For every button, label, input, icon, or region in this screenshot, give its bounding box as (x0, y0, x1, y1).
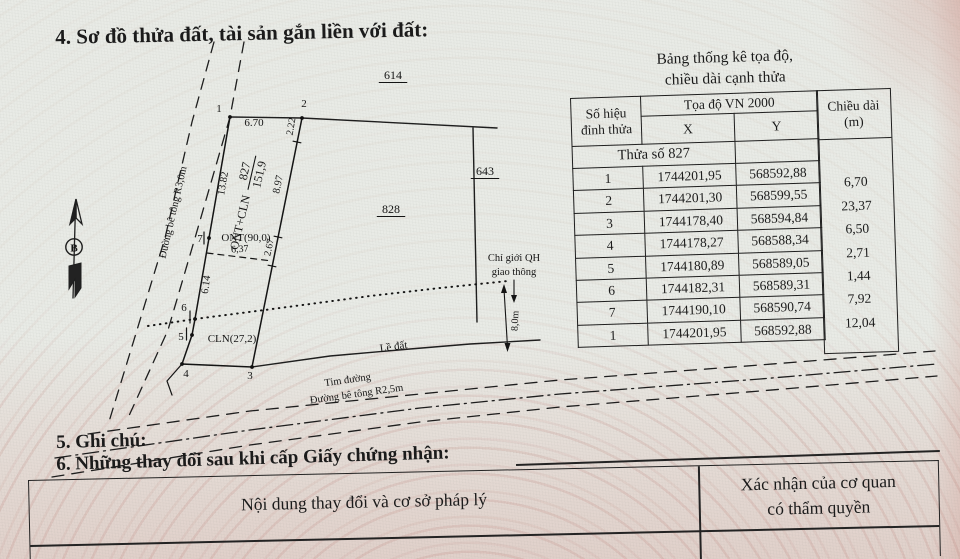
diagram-label: 6,37 (231, 243, 249, 255)
coord-cell: 5 (576, 256, 647, 281)
coord-cell: 1744201,95 (648, 320, 742, 345)
coord-cell: 1744201,95 (643, 163, 737, 188)
diagram-label: 5 (178, 331, 184, 343)
coordinate-table: Số hiệuđỉnh thửa Tọa độ VN 2000 X Y Thửa… (570, 88, 898, 362)
diagram-label: Lề đất (379, 339, 408, 355)
length-value: 1,44 (822, 267, 895, 285)
coord-cell: 568599,55 (736, 183, 821, 208)
length-column: Chiều dài (m) 6,7023,376,502,711,447,921… (815, 88, 898, 354)
changes-right-header: Xác nhận của cơ quan có thẩm quyền (698, 468, 939, 522)
diagram-label: Chỉ giới QH (488, 253, 541, 264)
diagram-label: CLN(27,2) (208, 333, 257, 345)
diagram-label: Đường bê tông R3,0m (158, 165, 190, 259)
header-x: X (641, 113, 735, 144)
length-value: 6,50 (821, 220, 894, 238)
coord-cell: 3 (574, 211, 645, 236)
coord-cell: 1 (573, 166, 644, 191)
coord-cell: 1744190,10 (647, 298, 741, 323)
diagram-label: 614 (384, 68, 402, 82)
diagram-label: 4 (183, 368, 189, 380)
diagram-label: 6 (181, 302, 187, 314)
diagram-label: 643 (476, 164, 494, 178)
coord-cell: 568592,88 (741, 317, 826, 342)
header-length: Chiều dài (m) (816, 89, 891, 140)
diagram-label: giao thông (492, 267, 537, 278)
length-value: 12,04 (823, 314, 896, 332)
diagram-label: Đường bê tông R2,5m (309, 383, 404, 407)
coord-cell: 568590,74 (740, 295, 825, 320)
header-y: Y (734, 111, 819, 142)
coord-cell: 1744201,30 (643, 186, 737, 211)
diagram-label: 2 (301, 98, 307, 110)
coord-cell: 1744178,40 (644, 208, 738, 233)
diagram-label: Tim đường (324, 372, 373, 390)
diagram-label: 8.97 (271, 174, 286, 194)
coord-cell: 6 (576, 278, 647, 303)
header-vertex: Số hiệuđỉnh thửa (571, 96, 642, 146)
coord-cell: 1 (578, 323, 649, 348)
north-label: B (70, 243, 78, 255)
length-value: 6,70 (819, 173, 892, 191)
diagram-label: 3 (247, 370, 253, 382)
diagram-label: 2.22 (285, 117, 299, 136)
coord-table-title: Bảng thống kê tọa độ, chiều dài cạnh thử… (629, 45, 820, 92)
coord-cell: 568592,88 (736, 161, 821, 186)
length-value: 7,92 (823, 290, 896, 308)
coord-cell: 568594,84 (737, 205, 822, 230)
certificate-page: 4. Sơ đồ thửa đất, tài sản gắn liền với … (0, 0, 960, 559)
diagram-label: 7 (197, 233, 203, 245)
diagram-label: ONT(90,0) (221, 232, 271, 244)
diagram-label: 8,0m (510, 310, 522, 331)
diagram-label: 6.14 (200, 274, 214, 294)
diagram-label: 6.70 (244, 117, 264, 129)
diagram-label: 13.82 (216, 171, 231, 196)
length-value: 23,37 (820, 197, 893, 215)
coord-cell: 568589,05 (738, 250, 823, 275)
label-arrow (511, 280, 517, 303)
length-value: 2,71 (821, 243, 894, 261)
coord-cell: 7 (577, 301, 648, 326)
coord-cell: 568588,34 (738, 228, 823, 253)
changes-table-header-rule (30, 525, 939, 547)
coord-cell: 4 (575, 233, 646, 258)
section5-title: 5. Ghi chú: (56, 430, 147, 454)
parcel-row-empty (735, 139, 820, 164)
diagram-label: 828 (382, 202, 400, 216)
coord-cell: 2 (573, 189, 644, 214)
diagram-label: 1 (216, 103, 222, 115)
coord-cell: 1744182,31 (646, 275, 740, 300)
coord-cell: 1744178,27 (645, 230, 739, 255)
changes-left-header: Nội dung thay đổi và cơ sở pháp lý (29, 484, 698, 520)
coord-cell: 568589,31 (739, 273, 824, 298)
coord-cell: 1744180,89 (645, 253, 739, 278)
